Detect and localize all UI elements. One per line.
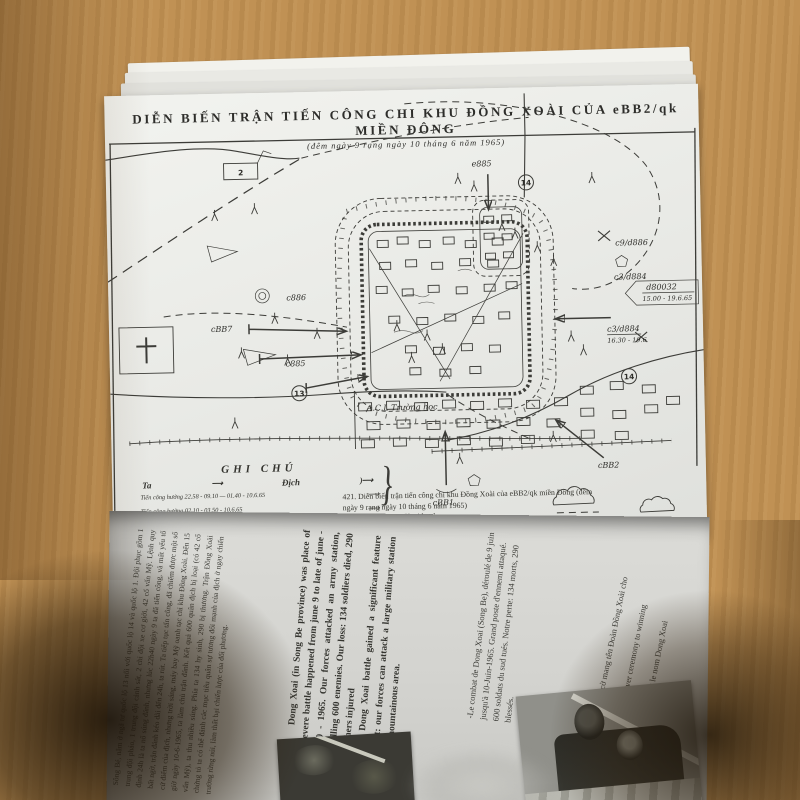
- compound-inner-ring: [368, 229, 523, 390]
- attack-arrow-southeast: [557, 420, 604, 459]
- left-shadow: [0, 0, 150, 580]
- unit-label-d80032: d80032: [646, 282, 677, 292]
- unit-label-c3d884b: c3/d884: [607, 324, 640, 334]
- enemy-arrow-icon: )⟶: [360, 476, 372, 486]
- enemy-line-west-dashed: [164, 310, 347, 331]
- place-label-school: A.C.L Trường học: [366, 402, 439, 413]
- observation-circle-inner: [259, 292, 266, 299]
- attack-arrow-north: [488, 174, 489, 208]
- compound-middle-ring: [348, 208, 544, 412]
- unit-label-c3d884b-time: 16.30 - 19.6: [607, 336, 647, 345]
- unit-label-c885: c885: [286, 359, 306, 368]
- infantry-symbols: [211, 170, 601, 469]
- compound-road-2: [437, 233, 526, 381]
- english-column: Dong Xoai (in Song Be province) was plac…: [284, 529, 470, 754]
- handwriting-scribble-3: [458, 269, 472, 271]
- compound-buildings: [375, 215, 519, 378]
- legend-row-1-text: Tiến công hướng 22.58 - 09.10 — 01.40 - …: [140, 490, 265, 507]
- unit-label-c3d884b-underline: [607, 334, 641, 335]
- photographed-book-scene: DIỄN BIẾN TRẬN TIẾN CÔNG CHI KHU ĐỒNG XO…: [0, 0, 800, 800]
- map-frame-top: [109, 132, 695, 144]
- tree-cluster-2: [640, 496, 675, 512]
- observation-circle: [255, 289, 269, 303]
- handwriting-scribble-2: [418, 302, 434, 304]
- right-shadow: [680, 520, 800, 800]
- route-14-bottom-number: 14: [624, 372, 635, 381]
- bottom-left-shadow: [0, 550, 310, 800]
- unit-label-e885: e885: [471, 159, 491, 168]
- camera-blur-spot: [406, 746, 557, 800]
- unit-cross-symbol-1: [598, 231, 610, 241]
- legend-enemy-label: Địch: [282, 477, 300, 487]
- unit-label-d80032-time: 15.00 - 19.6.65: [642, 294, 692, 303]
- route-14-top-number: 14: [521, 178, 532, 187]
- unit-label-c886: c886: [286, 293, 306, 302]
- unit-label-c9d886: c9/d886: [615, 238, 648, 248]
- unit-label-cbb7: cBB7: [211, 325, 233, 334]
- pentagon-symbol-1: [616, 255, 628, 266]
- unit-box-number: 2: [238, 168, 243, 177]
- unit-label-cbb2: cBB2: [598, 461, 620, 470]
- attack-arrow-southwest: [306, 377, 366, 393]
- route-13-number: 13: [294, 389, 305, 398]
- compound-road-3: [370, 284, 523, 353]
- caption-421-vietnamese: 421. Diễn biến trận tiến công chi khu Đồ…: [342, 487, 592, 512]
- photo-dark-blob-2: [348, 758, 400, 795]
- unit-label-c3d884: c3/d884: [614, 272, 647, 282]
- map-page: DIỄN BIẾN TRẬN TIẾN CÔNG CHI KHU ĐỒNG XO…: [104, 84, 707, 548]
- english-text: Dong Xoai (in Song Be province) was plac…: [284, 529, 470, 754]
- pentagon-symbol-2: [468, 474, 480, 485]
- attack-arrow-west-1: [249, 322, 345, 334]
- friendly-arrow-icon: ⟶: [211, 479, 222, 489]
- fence-west-vertical: [354, 391, 355, 449]
- triangle-marker-1: [207, 245, 237, 262]
- d80032-underline: [642, 292, 694, 293]
- attack-arrow-east: [557, 318, 611, 319]
